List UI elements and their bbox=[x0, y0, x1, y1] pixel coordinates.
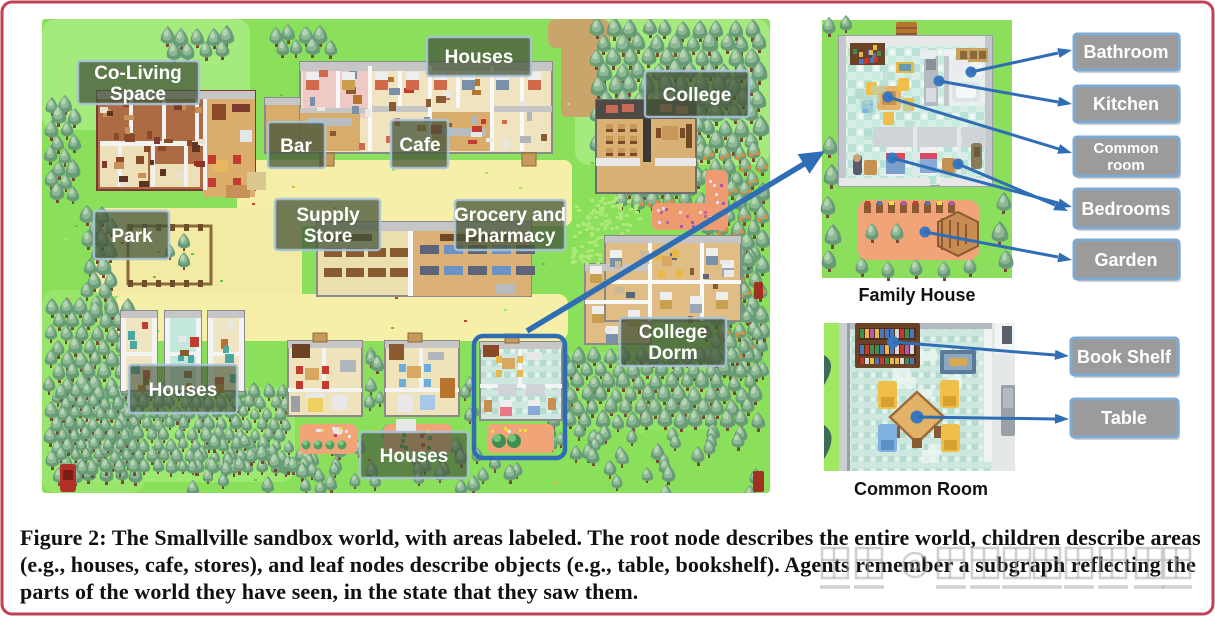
svg-text:Houses: Houses bbox=[380, 446, 449, 467]
svg-text:Bar: Bar bbox=[280, 136, 312, 157]
svg-text:Dorm: Dorm bbox=[648, 343, 698, 364]
svg-text:Table: Table bbox=[1101, 408, 1147, 428]
svg-text:parts of the world they have s: parts of the world they have seen, in th… bbox=[20, 579, 638, 604]
svg-text:Supply: Supply bbox=[296, 205, 360, 226]
svg-text:Houses: Houses bbox=[149, 380, 218, 401]
svg-text:Garden: Garden bbox=[1094, 250, 1157, 270]
svg-text:College: College bbox=[639, 322, 708, 343]
svg-text:Park: Park bbox=[111, 226, 153, 247]
svg-text:(e.g., houses, cafe, stores),: (e.g., houses, cafe, stores), and leaf n… bbox=[20, 552, 1196, 577]
svg-text:Space: Space bbox=[110, 84, 166, 105]
svg-text:room: room bbox=[1107, 157, 1145, 174]
svg-text:Co-Living: Co-Living bbox=[94, 63, 182, 84]
svg-text:Family House: Family House bbox=[858, 285, 975, 305]
svg-text:Common: Common bbox=[1094, 140, 1159, 157]
svg-text:Houses: Houses bbox=[445, 47, 514, 68]
svg-text:Cafe: Cafe bbox=[399, 135, 440, 156]
svg-text:College: College bbox=[663, 85, 732, 106]
svg-text:Bathroom: Bathroom bbox=[1084, 42, 1169, 62]
svg-text:Figure 2: The Smallville sandb: Figure 2: The Smallville sandbox world, … bbox=[20, 525, 1201, 550]
svg-text:Grocery and: Grocery and bbox=[454, 205, 566, 226]
svg-text:Book Shelf: Book Shelf bbox=[1077, 347, 1172, 367]
svg-text:Pharmacy: Pharmacy bbox=[465, 226, 556, 247]
svg-text:Kitchen: Kitchen bbox=[1093, 94, 1159, 114]
svg-text:Bedrooms: Bedrooms bbox=[1081, 199, 1170, 219]
svg-text:Common Room: Common Room bbox=[854, 479, 988, 499]
svg-text:Store: Store bbox=[304, 226, 353, 247]
